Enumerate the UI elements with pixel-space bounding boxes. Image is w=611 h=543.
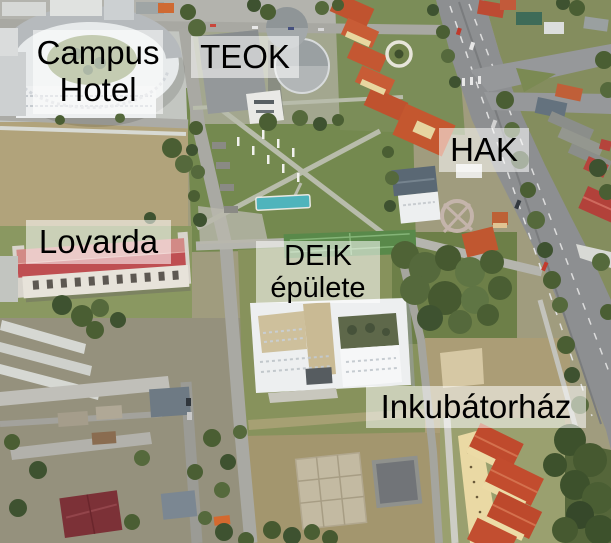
- lovarda-sheds: [0, 256, 18, 302]
- map-label-lovarda: Lovarda: [26, 220, 171, 264]
- map-canvas[interactable]: Campus Hotel TEOK HAK Lovarda DEIK épüle…: [0, 0, 611, 543]
- map-label-inkubatorhaz: Inkubátorház: [366, 386, 586, 428]
- map-label-campus-hotel: Campus Hotel: [33, 30, 163, 114]
- map-label-teok: TEOK: [191, 36, 299, 78]
- concrete-ruins: [296, 453, 367, 529]
- garden-fountain: [387, 42, 411, 66]
- reflecting-pool: [256, 195, 311, 211]
- map-label-hak: HAK: [439, 128, 529, 172]
- map-label-deik-epulete: DEIK épülete: [256, 241, 380, 303]
- flat-gray-hall: [372, 456, 423, 509]
